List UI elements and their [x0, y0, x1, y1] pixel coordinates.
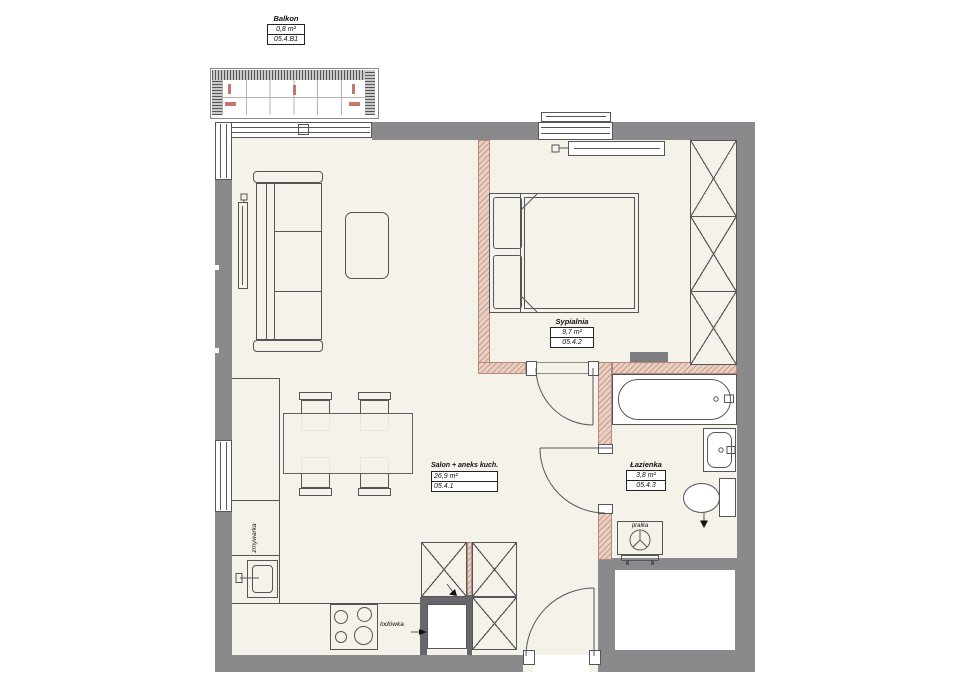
washing-machine-leg — [626, 561, 629, 565]
chair-backrest — [299, 392, 332, 400]
balcony-glazing-top — [218, 122, 372, 138]
wall-left-upper — [215, 180, 232, 440]
chair-backrest — [358, 488, 391, 496]
fridge-label: lodówka — [380, 621, 412, 628]
counter-divider — [232, 500, 280, 501]
wall-top-left-segment — [372, 122, 538, 140]
burner — [334, 610, 348, 624]
glazing-mullion — [298, 124, 309, 135]
pillow — [493, 197, 522, 249]
burner — [335, 631, 347, 643]
sofa-armrest — [253, 171, 323, 183]
sofa-backrest-line — [266, 183, 267, 340]
glazing-line — [220, 124, 221, 178]
chair-backrest — [299, 488, 332, 496]
coffee-table — [345, 212, 389, 279]
radiator-line — [242, 206, 243, 285]
fridge-niche-wall-left — [420, 597, 427, 655]
balcony-mark — [293, 85, 296, 95]
entrance-door-jamb — [589, 650, 601, 665]
kitchen-counter-bottom — [232, 603, 420, 655]
window-line — [541, 127, 610, 128]
balcony-railing-right — [365, 70, 375, 115]
tall-cabinet — [421, 542, 467, 597]
entrance-door-jamb — [523, 650, 535, 665]
room-label-balkon: Balkon 0,8 m² 05.4.B1 — [265, 14, 307, 45]
bedroom-door-jamb — [526, 361, 537, 376]
wall-notch — [215, 348, 219, 353]
balcony-floor-grid-row-line — [222, 97, 365, 98]
dining-table — [283, 413, 413, 474]
room-name: Salon + aneks kuch. — [431, 461, 497, 470]
partition-hall-lower — [598, 513, 612, 560]
floor-plan: Balkon 0,8 m² 05.4.B1 Sypialnia 9,7 m² 0… — [0, 0, 960, 688]
pillow — [493, 255, 522, 309]
sofa-cushion-line — [275, 231, 322, 232]
glazing-line — [226, 124, 227, 178]
balcony-mark — [225, 102, 236, 106]
bedroom-window — [538, 122, 613, 140]
wall-notch — [215, 265, 219, 270]
wardrobe-section — [691, 291, 736, 364]
toilet-tank — [719, 478, 736, 517]
sofa-armrest — [253, 340, 323, 352]
tall-cabinet — [472, 597, 517, 650]
room-code: 05.4.3 — [626, 480, 666, 491]
balcony-glazing-left — [215, 122, 232, 180]
balcony-mark — [349, 102, 360, 106]
partition-bedroom-south — [478, 362, 526, 374]
sofa-backrest-line — [274, 183, 275, 340]
fridge-niche-wall-top — [420, 597, 467, 604]
room-code: 05.4.1 — [431, 481, 498, 492]
bathtub-inner — [618, 379, 731, 420]
chair-backrest — [358, 392, 391, 400]
fridge — [427, 604, 467, 649]
room-name: Balkon — [265, 14, 307, 23]
room-code: 05.4.B1 — [267, 34, 305, 45]
washer-label: pralka — [621, 523, 659, 529]
radiator-livingroom — [238, 202, 248, 289]
dishwasher-label: zmywarka — [250, 512, 260, 564]
sofa-cushion-line — [275, 291, 322, 292]
kitchen-sink-basin — [252, 565, 273, 593]
window-line — [220, 442, 221, 510]
entrance-threshold — [533, 655, 589, 672]
wardrobe-section — [691, 141, 736, 216]
balcony-railing-top — [212, 70, 375, 80]
bedroom-door-threshold — [536, 362, 588, 374]
balcony-mark — [352, 84, 355, 94]
room-code: 05.4.2 — [550, 337, 594, 348]
wardrobe — [690, 140, 737, 365]
duvet-inner — [524, 197, 635, 309]
bedroom-door-jamb — [588, 361, 599, 376]
toilet-bowl — [683, 483, 720, 513]
washbasin-inner — [707, 432, 732, 468]
washing-machine-leg — [651, 561, 654, 565]
livingroom-window — [215, 440, 232, 512]
partition-hall-upper — [598, 362, 612, 445]
bathroom-door-jamb — [598, 504, 613, 514]
wall-left-lower — [215, 512, 232, 655]
balcony-mark — [228, 84, 231, 94]
burner — [357, 607, 372, 622]
glazing-line — [220, 127, 370, 128]
bedroom-window-sill — [541, 112, 611, 122]
tall-cabinet — [472, 542, 517, 597]
wardrobe-section — [691, 216, 736, 291]
wall-bottom-left-segment — [215, 655, 523, 672]
window-line — [541, 133, 610, 134]
room-name: Łazienka — [625, 460, 667, 469]
room-name: Sypialnia — [546, 317, 598, 326]
sill-line — [546, 116, 606, 117]
shaft-void — [615, 570, 735, 650]
burner — [354, 626, 373, 645]
glazing-line — [220, 132, 370, 133]
room-label-lazienka: Łazienka 3,8 m² 05.4.3 — [625, 460, 667, 491]
room-label-sypialnia: Sypialnia 9,7 m² 05.4.2 — [546, 317, 598, 348]
window-line — [226, 442, 227, 510]
radiator-line — [574, 148, 660, 149]
bathroom-door-jamb — [598, 444, 613, 454]
wall-top-right-segment — [613, 122, 755, 140]
room-label-salon: Salon + aneks kuch. 26,9 m² 05.4.1 — [431, 461, 497, 492]
